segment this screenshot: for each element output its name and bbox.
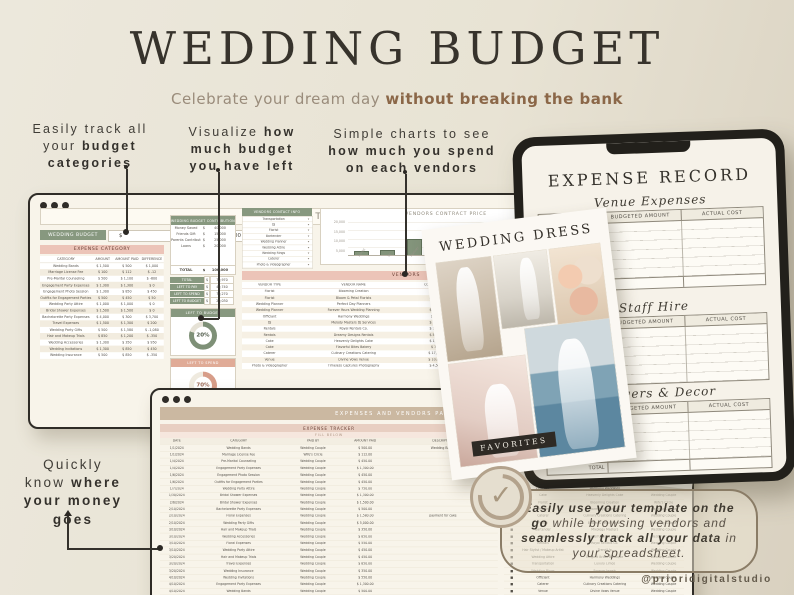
table-row[interactable]: 3/20/2024Travel ExpensesWedding Couple$ … [160,561,498,568]
table-row[interactable]: 3/20/2024Hair and Makeup TrialsWedding C… [160,554,498,561]
table-cell: 3/20/2024 [160,562,194,566]
table-cell: $ 500 [92,353,114,357]
table-row[interactable]: 5,000 [323,249,345,253]
table-cell: $ 1,580 [114,328,140,332]
table-cell: Florist [242,290,297,294]
table-cell: $ 0 [140,302,164,306]
column-header: PAID BY [284,439,343,443]
table-cell: 2/6/2024 [160,501,194,505]
table-cell: $ -350 [140,334,164,338]
table-cell: LEFT TO BUDGET [170,298,204,304]
annotation-visualize-budget: Visualize how much budget you have left [166,124,318,175]
table-cell: Engagement Party Expenses [194,467,284,471]
table-row[interactable]: 3/10/2024Hair and Makeup TrialsWedding C… [160,527,498,534]
table-cell: Wedding Couple [284,549,343,553]
table-cell: Hair and Makeup Trials [194,528,284,532]
table-cell: $ 450.00 [342,473,388,477]
table-cell: $ -1,080 [140,328,164,332]
table-row[interactable]: 1/6/2024Outfits for Engagement PartiesWe… [160,479,498,486]
table-cell: Floral Expenses [194,542,284,546]
table-cell: Bridal Shower Expenses [40,309,92,313]
table-cell: 2/10/2024 [160,514,194,518]
table-cell: $ 500 [92,277,114,281]
column-header: AMOUNT [92,257,114,261]
table-cell: Wedding Couple [284,528,343,532]
table-cell: Wedding Couple [284,467,343,471]
table-cell: LEFT TO PAY [170,284,204,290]
table-cell: ▾ [305,257,313,260]
table-cell: ▾ [305,240,313,243]
table-cell: $ -12 [140,271,164,275]
table-cell: Caterer [242,352,297,356]
table-cell: $ 550.00 [342,542,388,546]
table-cell: 20,000 [323,220,345,224]
table-cell: Wedding Couple [284,542,343,546]
table-cell: $ 500.00 [342,446,388,450]
wedding-dress-card: WEDDING DRESS FAVORITES [421,208,636,481]
studio-handle: @prioridigitalstudio [542,574,772,585]
table-cell: $ 1,300.00 [342,583,388,587]
table-cell: Wedding Invitations [194,576,284,580]
table-row[interactable]: Photo & Videographer▾ [243,262,313,268]
dress-room-photo [493,249,556,329]
table-row[interactable]: 1/4/2024Engagement Party ExpensesWedding… [160,465,498,472]
table-cell: Wedding Couple [284,508,343,512]
table-row[interactable]: ■VenueDivine Vows VenueWedding Couple [504,588,684,595]
contribution-box: WEDDING BUDGET CONTRIBUTION Money Saved$… [170,215,236,275]
table-cell: Travel Expenses [40,322,92,326]
table-cell: $ 1,300.00 [342,467,388,471]
table-cell: $ 1,500 [114,309,140,313]
table-cell: Florist [242,296,297,300]
table-cell: Wedding Couple [284,590,343,594]
column-header: AMOUNT PAID [342,439,388,443]
table-cell: $ 850 [114,347,140,351]
contribution-rows: Money Saved$40,000Friends Gift$15,000Par… [171,225,235,249]
table-cell: Wedding Planner [242,309,297,313]
table-cell: Wedding Party Attire [40,302,92,306]
table-cell: Bridal Shower Expenses [194,494,284,498]
table-cell: $ 500 [92,328,114,332]
table-cell: Bloom & Petal Florists [297,296,410,300]
table-cell: $ 50 [140,296,164,300]
table-cell: Wedding Party Gifts [40,328,92,332]
table-cell: Wedding Attire [243,246,305,249]
table-cell: Outfits for Engagement Parties [40,296,92,300]
table-cell: $ 350 [114,341,140,345]
table-cell: $ 450.00 [342,555,388,559]
table-cell: Transportation [243,217,305,220]
table-cell: $ 450.00 [342,460,388,464]
table-cell: ▾ [305,235,313,238]
table-row[interactable]: 20,000 [323,220,345,224]
column-header: VENDOR NAME [297,283,410,287]
table-cell: $ 5,000.00 [342,521,388,525]
table-row[interactable]: 15,000 [323,230,345,234]
connector-line [67,516,69,550]
table-cell: 4/10/2024 [160,583,194,587]
table-cell: 3/10/2024 [160,542,194,546]
table-cell: 1/7/2024 [160,487,194,491]
table-cell: $ 1,300 [114,322,140,326]
table-cell: $ 1,500 [92,322,114,326]
table-row[interactable]: 1/1/2024Marriage License FeeWife's Circl… [160,452,498,459]
connector-line [218,172,220,319]
table-cell: ▾ [305,263,313,266]
chart-bar-group: Florist [348,221,375,255]
table-cell: 1/1/2024 [160,446,194,450]
check-circle-icon: ✓ [470,466,532,528]
table-row[interactable]: 4/10/2024Wedding InvitationsWedding Coup… [160,575,498,582]
table-cell: 25,000 [207,238,233,242]
table-cell: Wedding Couple [284,576,343,580]
table-cell: DJ [243,223,305,226]
table-cell: Venue [242,358,297,362]
table-cell: Engagement Party Expenses [194,583,284,587]
table-cell: $ 850 [92,334,114,338]
window-controls[interactable] [162,396,191,403]
table-cell: $ 450 [140,347,164,351]
table-cell: $ 200 [140,322,164,326]
table-cell: Officiant [242,315,297,319]
table-cell: ■ [504,583,520,587]
table-cell: Rentals [242,327,297,331]
donut-chart-left-to-budget: 20% [189,322,217,350]
connector-dot [402,271,408,277]
table-cell: 2/10/2024 [160,508,194,512]
table-row[interactable]: 10,000 [323,239,345,243]
table-cell: 15,000 [323,230,345,234]
table-cell: Wedding Party Attire [194,487,284,491]
page-subtitle: Celebrate your dream day without breakin… [0,90,794,108]
table-row[interactable]: 3/10/2024Wedding Party AttireWedding Cou… [160,547,498,554]
table-cell: 3/10/2024 [160,528,194,532]
table-cell: $ 0 [140,283,164,287]
table-cell: 4/10/2024 [160,576,194,580]
table-row[interactable]: 3/10/2024Floral ExpensesWedding Couple$ … [160,541,498,548]
table-cell: Heavenly Delights Cake [297,339,410,343]
table-cell: Hair and Makeup Trials [194,555,284,559]
table-cell: $ 112.00 [342,453,388,457]
table-cell: $ 500.00 [342,508,388,512]
table-cell: $ 1,580.00 [342,514,388,518]
table-cell: ▾ [305,229,313,232]
table-cell: Wedding Party Attire [194,549,284,553]
table-cell: $ 1,000 [114,302,140,306]
table-cell: $ 450 [140,290,164,294]
table-row[interactable]: 1/4/2024Pre-Marital CounselingWedding Co… [160,459,498,466]
table-cell: 10,000 [323,239,345,243]
table-cell: 5,000 [323,249,345,253]
chart-bar-group: DJ [375,221,402,255]
table-cell: $ 450.00 [342,549,388,553]
table-cell: $ 750.00 [342,487,388,491]
table-cell: Wedding Couple [284,562,343,566]
table-cell: ▾ [305,252,313,255]
table-cell: $ 1,300 [92,283,114,287]
table-cell: $ 350.00 [342,569,388,573]
page-title: WEDDING BUDGET [0,22,794,75]
table-cell: TOTAL [170,277,204,283]
table-cell: $ 500.00 [342,590,388,594]
table-cell: 3/20/2024 [160,555,194,559]
table-row[interactable]: 4/10/2024Wedding BandsWedding Couple$ 50… [160,588,498,595]
column-header: AMOUNT PAID [114,257,140,261]
table-cell: Friends Gift [171,232,201,236]
table-cell: 1/4/2024 [160,467,194,471]
column-header: CATEGORY [40,257,92,261]
table-cell: DJ [242,321,297,325]
table-row[interactable]: 2/10/2024Bachelorette Party ExpensesWedd… [160,506,498,513]
annotation-money-goes: Quickly know where your money goes [6,456,140,529]
table-cell: Marriage License Fee [40,271,92,275]
annotation-simple-charts: Simple charts to see how much you spend … [322,126,502,177]
wedding-budget-label: WEDDING BUDGET [40,230,106,240]
vendors-contact-title: VENDORS CONTACT INFO [242,208,312,216]
table-cell: Culinary Creations Catering [297,352,410,356]
table-cell: Cake [242,346,297,350]
table-cell: Engagement Photo Session [194,473,284,477]
table-cell: $ 500 [92,296,114,300]
table-cell: Wedding Insurance [40,353,92,357]
table-cell: 3/10/2024 [160,535,194,539]
expense-rows: Wedding Bands$ 1,500$ 500$ 1,000Marriage… [40,263,164,359]
connector-dot [157,545,163,551]
table-cell: $ -350 [140,353,164,357]
camera-notch-icon [606,141,690,155]
table-cell: Bridal Shower Expenses [194,501,284,505]
table-cell: Loans [171,244,201,248]
table-row[interactable]: LEFT TO BUDGET$20,030 [170,298,234,304]
contribution-total: TOTAL $ 100,000 [171,265,235,274]
table-cell: $ 4,000 [92,315,114,319]
table-cell: ▾ [305,223,313,226]
table-cell: 1/6/2024 [160,473,194,477]
table-cell: ▾ [305,246,313,249]
table-cell: Rentals [242,333,297,337]
table-cell: $ 112 [114,271,140,275]
table-cell: Engagement Party Expenses [40,283,92,287]
table-cell: Pre-Marital Counseling [40,277,92,281]
table-cell: $ 1,200 [114,334,140,338]
connector-dot [198,315,204,321]
table-cell: 1/6/2024 [160,480,194,484]
table-cell: Wedding Couple [284,501,343,505]
column-header: CATEGORY [194,439,284,443]
table-cell: Wedding Couple [284,494,343,498]
connector-line [67,548,160,550]
table-cell: $ 1,500 [92,264,114,268]
table-cell: Hair and Makeup Trials [40,334,92,338]
table-cell: Divine Vows Venue [297,358,410,362]
table-row[interactable]: 4/10/2024Engagement Party ExpensesWeddin… [160,582,498,589]
table-cell: Wedding Couple [284,583,343,587]
table-cell: Marriage License Fee [194,453,284,457]
subtitle-bold: without breaking the bank [385,90,623,108]
connector-line [405,174,407,273]
table-cell: Money Saved [171,226,201,230]
table-cell: $ 0 [140,309,164,313]
table-cell: Wedding Insurance [194,569,284,573]
table-cell: Wife's Circle [284,453,343,457]
table-cell: 4/10/2024 [160,590,194,594]
table-row[interactable]: 2/6/2024Bridal Shower ExpensesWedding Co… [160,500,498,507]
callout-box: Easily use your template on the go while… [500,489,758,573]
table-cell: 3/20/2024 [160,569,194,573]
table-cell: $ 1,300 [92,290,114,294]
table-cell: 3/10/2024 [160,549,194,553]
table-cell: 1/1/2024 [160,453,194,457]
table-row[interactable]: 2/10/2024Wedding Party GiftsWedding Coup… [160,520,498,527]
table-cell: ▾ [305,217,313,220]
table-cell: $ 350.00 [342,528,388,532]
table-cell: Wedding Couple [284,487,343,491]
table-cell: Wedding Couple [284,480,343,484]
table-cell: Wedding Invitations [40,347,92,351]
connector-dot [123,229,129,235]
table-cell: Bachelorette Party Expenses [40,315,92,319]
table-cell: Caterer [243,257,305,260]
table-row[interactable]: 1/6/2024Engagement Photo SessionWedding … [160,472,498,479]
table-cell: Wedding Party Gifts [194,521,284,525]
table-cell: Perfect Day Planners [297,302,410,306]
table-cell: Cake [242,339,297,343]
table-cell: Flavorful Bites Bakery [297,346,410,350]
table-cell: Wedding Planner [242,302,297,306]
table-cell: Parents Contribution [171,238,201,242]
table-cell: 40,000 [207,226,233,230]
table-cell: 20,000 [207,244,233,248]
gauge-title: LEFT TO SPEND [171,359,235,367]
dress-photo [435,256,503,362]
table-cell: $ 300 [114,315,140,319]
table-cell: 2/10/2024 [160,521,194,525]
table-cell: 1/4/2024 [160,460,194,464]
table-cell: Wedding Couple [284,473,343,477]
table-cell: Venue [520,590,567,594]
table-cell: $ 850 [114,353,140,357]
table-cell: Pre-Marital Counseling [194,460,284,464]
table-row[interactable]: 2/10/2024Floral ExpensesWedding Couple$ … [160,513,498,520]
table-row[interactable]: 1/30/2024Bridal Shower ExpensesWedding C… [160,493,498,500]
expense-category-table: CATEGORYAMOUNTAMOUNT PAIDDIFFERENCE Wedd… [40,256,164,359]
table-cell: $ 3,700 [140,315,164,319]
table-cell: Wedding Couple [284,569,343,573]
connector-line [126,169,128,230]
table-cell: Wedding Couple [284,521,343,525]
table-cell: Wedding Bands [194,590,284,594]
column-header: DATE [160,439,194,443]
expense-category-header: EXPENSE CATEGORY [40,245,164,254]
table-cell: Wedding Planner [243,240,305,243]
poster: WEDDING BUDGET Celebrate your dream day … [0,0,794,595]
table-cell: Wedding Couple [284,555,343,559]
contribution-title: WEDDING BUDGET CONTRIBUTION [171,216,235,225]
table-cell: Florist [243,229,305,232]
table-cell: ■ [504,576,520,580]
table-cell: Outfits for Engagement Parties [194,480,284,484]
table-cell: Bachelorette Party Expenses [194,508,284,512]
table-cell: $ 1,500 [92,309,114,313]
table-cell: 15,000 [207,232,233,236]
connector-line [203,318,219,320]
table-cell: Wedding Accessories [194,535,284,539]
table-cell: Bartender [243,235,305,238]
table-cell: $ 1,500.00 [342,501,388,505]
table-header: CATEGORYAMOUNTAMOUNT PAIDDIFFERENCE [40,256,164,263]
subtitle-normal: Celebrate your dream day [171,90,385,108]
table-cell: Melody Masters DJ Services [297,321,410,325]
table-cell: Wedding Accessories [40,341,92,345]
table-cell: Wedding Couple [284,460,343,464]
table-cell: Floral Expenses [194,514,284,518]
table-cell: Photo & Videographer [243,263,305,266]
vendors-contact-list: Transportation▾DJ▾Florist▾Bartender▾Wedd… [242,216,313,269]
table-cell: $ 1,300.00 [342,494,388,498]
table-cell: LEFT TO SPEND [170,291,204,297]
table-cell: Blooming Creation [297,290,410,294]
table-cell: $ 850.00 [342,535,388,539]
table-cell: $ 1,100 [114,277,140,281]
table-cell: $ -600 [140,277,164,281]
table-cell: 1/30/2024 [160,494,194,498]
table-cell: Wedding Bands [40,264,92,268]
table-cell: Wedding Couple [284,535,343,539]
table-cell: $ 550.00 [342,576,388,580]
table-row[interactable]: 1/7/2024Wedding Party AttireWedding Coup… [160,486,498,493]
table-cell: Divine Vows Venue [566,590,643,594]
callout-text: Easily use your template on the go while… [516,501,742,561]
table-cell: Wedding Couple [284,446,343,450]
table-cell: Dreamy Designs Rentals [297,333,410,337]
table-cell: $ 850 [114,290,140,294]
table-cell: $ 500 [114,264,140,268]
table-cell: Royal Rentals Co. [297,327,410,331]
expense-tracker-rows: 1/1/2024Wedding BandsWedding Couple$ 500… [160,445,498,595]
table-cell: $ 450 [114,296,140,300]
table-cell: Timeless Captures Photography [297,364,410,368]
table-cell: $ 1,300 [114,283,140,287]
table-cell: Wedding Bands [194,446,284,450]
table-cell: $ 1,000 [140,264,164,268]
table-cell: Photo & Videographer [242,364,297,368]
table-cell: $ 950 [140,341,164,345]
table-row[interactable]: 3/10/2024Wedding AccessoriesWedding Coup… [160,534,498,541]
table-cell: Wedding Rings [243,252,305,255]
table-cell: Wedding Couple [643,590,684,594]
column-header: DIFFERENCE [140,257,164,261]
x-axis-label: DJ [386,252,391,257]
expense-record-title: EXPENSE RECORD [522,164,777,192]
budget-summary-table: TOTAL$79,970LEFT TO PAY$49,740LEFT TO SP… [170,277,234,304]
annotation-track-categories: Easily track all your budget categories [8,121,172,172]
table-cell: $ 1,000 [92,302,114,306]
table-cell: Engagement Photo Session [40,290,92,294]
table-row[interactable]: Wedding Insurance$ 500$ 850$ -350 [40,352,164,358]
y-axis-ticks: 20,00015,00010,0005,000 [323,220,345,253]
expense-tracker-table: DATECATEGORYPAID BYAMOUNT PAIDDESCRIPTIO… [160,438,498,595]
table-cell: Harmony Weddings [297,315,410,319]
table-cell: Forever Yours Wedding Planning [297,309,410,313]
table-cell: ■ [504,590,520,594]
table-row[interactable]: 3/20/2024Wedding InsuranceWedding Couple… [160,568,498,575]
table-cell: $ 1,300 [92,347,114,351]
table-cell: Travel Expenses [194,562,284,566]
table-cell: $ 450.00 [342,480,388,484]
column-header: VENDOR TYPE [242,283,297,287]
table-cell: Wedding Couple [284,514,343,518]
table-cell: 20,030 [210,297,234,305]
